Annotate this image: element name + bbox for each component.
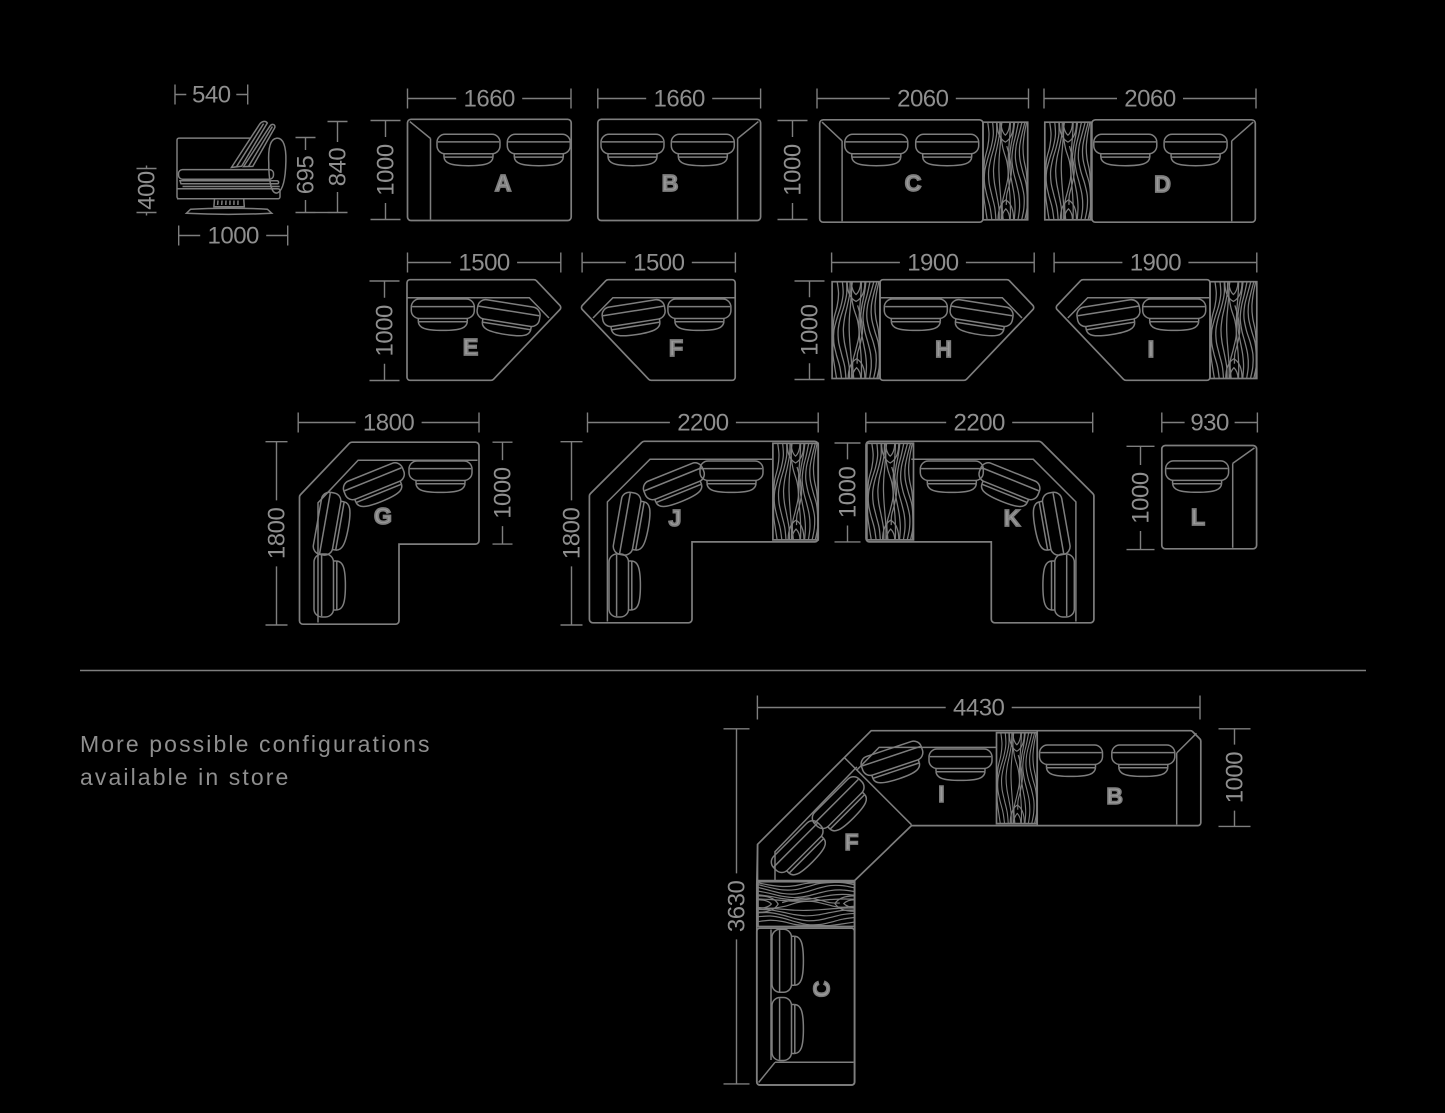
svg-text:H: H bbox=[935, 336, 952, 362]
svg-text:1000: 1000 bbox=[1222, 752, 1249, 804]
svg-text:L: L bbox=[1191, 504, 1205, 530]
svg-text:J: J bbox=[669, 505, 682, 531]
svg-text:C: C bbox=[809, 981, 835, 998]
svg-text:1500: 1500 bbox=[458, 250, 510, 277]
svg-text:1000: 1000 bbox=[208, 223, 260, 250]
svg-text:D: D bbox=[1154, 171, 1171, 197]
svg-text:1800: 1800 bbox=[363, 410, 415, 437]
svg-text:K: K bbox=[1004, 505, 1021, 531]
svg-text:695: 695 bbox=[293, 156, 320, 195]
svg-text:C: C bbox=[905, 170, 922, 196]
svg-text:2060: 2060 bbox=[897, 86, 949, 113]
svg-text:F: F bbox=[669, 335, 683, 361]
svg-text:1660: 1660 bbox=[654, 86, 706, 113]
svg-text:3630: 3630 bbox=[724, 881, 751, 933]
svg-text:1800: 1800 bbox=[559, 508, 586, 560]
svg-text:B: B bbox=[1106, 783, 1123, 809]
svg-text:2060: 2060 bbox=[1124, 86, 1176, 113]
svg-text:1000: 1000 bbox=[490, 467, 517, 519]
svg-text:1800: 1800 bbox=[264, 508, 291, 560]
svg-text:4430: 4430 bbox=[953, 695, 1005, 722]
svg-text:1000: 1000 bbox=[372, 305, 399, 357]
svg-text:1900: 1900 bbox=[907, 250, 959, 277]
svg-text:2200: 2200 bbox=[954, 410, 1006, 437]
svg-text:available in store: available in store bbox=[80, 764, 290, 790]
svg-text:930: 930 bbox=[1190, 410, 1229, 437]
svg-text:I: I bbox=[1148, 336, 1154, 362]
svg-text:840: 840 bbox=[325, 148, 352, 187]
svg-text:1900: 1900 bbox=[1130, 250, 1182, 277]
svg-text:1500: 1500 bbox=[633, 250, 685, 277]
svg-text:1000: 1000 bbox=[373, 144, 400, 196]
svg-text:F: F bbox=[844, 829, 858, 855]
svg-text:1000: 1000 bbox=[780, 144, 807, 196]
svg-text:1000: 1000 bbox=[797, 304, 824, 356]
svg-text:1660: 1660 bbox=[464, 86, 516, 113]
svg-text:More possible configurations: More possible configurations bbox=[80, 731, 432, 757]
svg-text:400: 400 bbox=[134, 171, 161, 210]
svg-text:G: G bbox=[374, 503, 392, 529]
svg-text:2200: 2200 bbox=[677, 410, 729, 437]
svg-text:1000: 1000 bbox=[835, 467, 862, 519]
svg-text:B: B bbox=[662, 170, 679, 196]
svg-text:A: A bbox=[495, 170, 512, 196]
svg-text:I: I bbox=[938, 781, 944, 807]
svg-text:540: 540 bbox=[192, 82, 231, 109]
svg-text:E: E bbox=[463, 334, 478, 360]
svg-text:1000: 1000 bbox=[1128, 472, 1155, 524]
